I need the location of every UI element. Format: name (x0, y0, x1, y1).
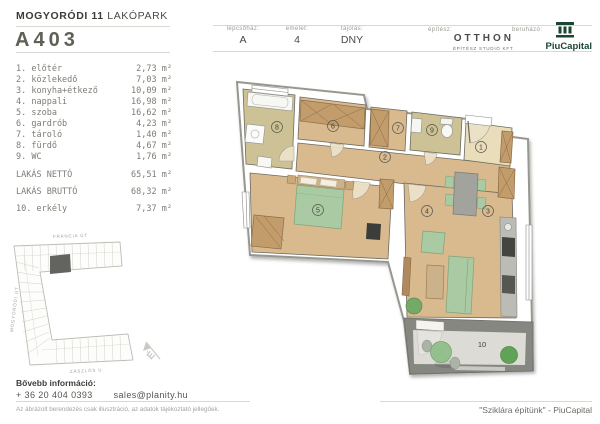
armchair (421, 231, 445, 254)
nightstand (287, 175, 296, 184)
plan-label-1: 1 (479, 145, 483, 152)
floorplan-sheet: MOGYORÓDI 11 LAKÓPARK A403 lépcsőház: A … (0, 0, 600, 424)
toilet (442, 125, 453, 138)
contact-row: + 36 20 404 0393 sales@planity.hu (16, 390, 188, 400)
divider (16, 401, 250, 402)
dining-table (453, 172, 478, 216)
sink (257, 156, 272, 168)
plan-label-6: 6 (331, 124, 335, 131)
plan-label-3: 3 (486, 209, 490, 216)
balcony-plant (501, 347, 518, 364)
disclaimer: Az ábrázolt berendezés csak illusztráció… (16, 406, 219, 413)
plan-label-5: 5 (316, 208, 320, 215)
plant (406, 298, 422, 314)
plan-label-9: 9 (430, 128, 434, 135)
slogan: "Sziklára építünk" - PiuCapital (392, 405, 592, 415)
tv (366, 223, 381, 240)
divider (380, 401, 592, 402)
washing-machine (245, 124, 265, 144)
email-address: sales@planity.hu (114, 390, 188, 400)
floor-plan: 1 2 3 4 5 6 7 8 9 10 (0, 0, 600, 424)
more-info-label: Bővebb információ: (16, 378, 96, 388)
plan-label-10: 10 (478, 340, 486, 349)
nightstand (345, 181, 354, 190)
bed (294, 175, 345, 229)
phone-number: + 36 20 404 0393 (16, 390, 93, 400)
plan-label-8: 8 (275, 125, 279, 132)
plan-label-4: 4 (425, 209, 429, 216)
balcony-table (431, 342, 452, 363)
kitchen-counter (500, 217, 517, 317)
coffee-table (426, 265, 444, 299)
plan-label-7: 7 (396, 126, 400, 133)
plan-label-2: 2 (383, 155, 387, 162)
sofa (446, 256, 474, 314)
